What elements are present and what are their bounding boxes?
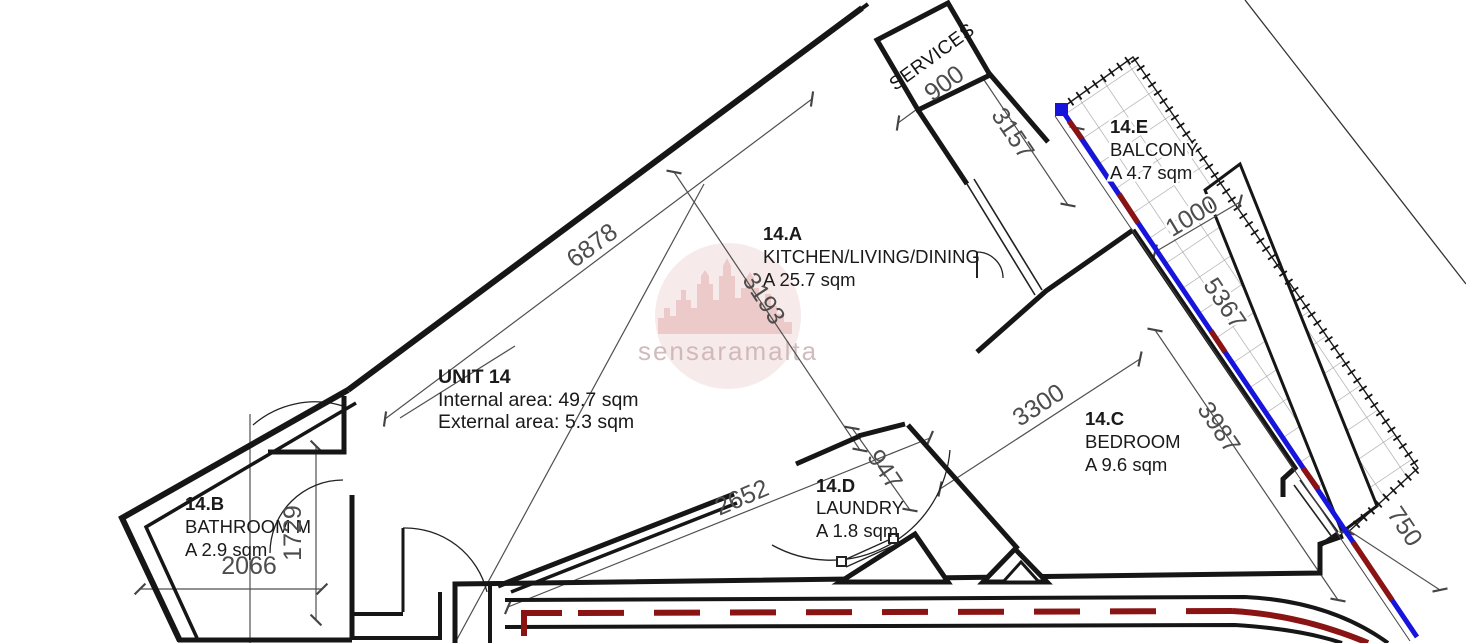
room-label-kitchen: 14.A KITCHEN/LIVING/DINING A 25.7 sqm — [763, 223, 980, 290]
room-id-14d: 14.D — [816, 475, 855, 496]
room-area-14a: A 25.7 sqm — [763, 269, 856, 290]
room-id-14a: 14.A — [763, 223, 802, 244]
room-name-14d: LAUNDRY — [816, 497, 904, 518]
dimension-3987: 3987 — [1191, 397, 1245, 459]
dimension-2652: 2652 — [711, 474, 773, 522]
room-area-14e: A 4.7 sqm — [1110, 162, 1192, 183]
dimension-3300: 3300 — [1008, 378, 1070, 432]
room-id-14c: 14.C — [1085, 408, 1124, 429]
wall-hall-diагonal-outer — [498, 494, 734, 586]
room-name-14c: BEDROOM — [1085, 431, 1181, 452]
wall-services-to-window — [918, 110, 967, 184]
slider-block-1 — [837, 557, 846, 566]
walls-vestibule — [352, 592, 440, 638]
services-door-arc — [977, 252, 1003, 278]
kitchen-window — [967, 179, 1042, 295]
floor-plan-canvas: sensaramalta — [0, 0, 1466, 643]
unit-info-block: UNIT 14 Internal area: 49.7 sqm External… — [438, 366, 639, 433]
centerline-dashes — [578, 611, 1232, 613]
room-name-14a: KITCHEN/LIVING/DINING — [763, 246, 980, 267]
unit-external-area: External area: 5.3 sqm — [438, 411, 634, 433]
unit-title: UNIT 14 — [438, 366, 511, 388]
wall-corridor-inner-2 — [505, 625, 1342, 643]
room-area-14d: A 1.8 sqm — [816, 520, 898, 541]
wall-kitchen-bedroom — [977, 230, 1133, 352]
room-label-bedroom: 14.C BEDROOM A 9.6 sqm — [1085, 408, 1181, 475]
dimension-2066: 2066 — [221, 552, 277, 580]
unit-internal-area: Internal area: 49.7 sqm — [438, 389, 639, 411]
room-id-14e: 14.E — [1110, 116, 1148, 137]
room-area-14c: A 9.6 sqm — [1085, 454, 1167, 475]
room-id-14b: 14.B — [185, 493, 224, 514]
dimension-3157: 3157 — [985, 103, 1039, 165]
watermark-text: sensaramalta — [638, 336, 818, 366]
centerline-corner — [524, 613, 562, 636]
room-name-14e: BALCONY — [1110, 139, 1198, 160]
floor-plan-page: sensaramalta — [0, 0, 1466, 643]
dimension-750: 750 — [1381, 501, 1428, 551]
wall-bedroom-left — [908, 425, 1018, 549]
dimension-1729: 1729 — [279, 505, 307, 561]
wall-triangles — [840, 534, 1047, 582]
wall-top-dashes — [806, 4, 868, 50]
wall-corridor-inner-1 — [505, 597, 1388, 643]
glass-start-marker — [1055, 103, 1068, 116]
site-boundary-line — [1245, 0, 1466, 284]
